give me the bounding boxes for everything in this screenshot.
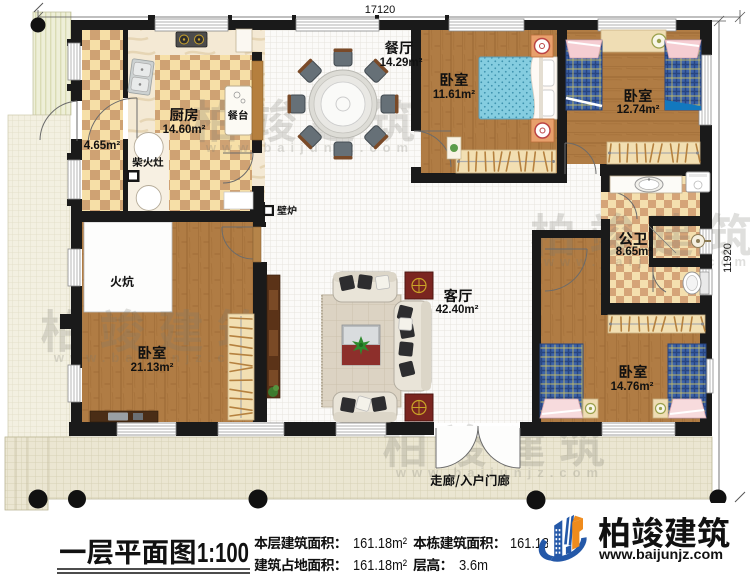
svg-text:11.61m²: 11.61m² xyxy=(433,89,475,101)
svg-text:12.74m²: 12.74m² xyxy=(617,104,660,116)
svg-text:161.18m²: 161.18m² xyxy=(353,557,407,574)
svg-text:21.13m²: 21.13m² xyxy=(131,362,174,374)
svg-text:www.baijunjz.com: www.baijunjz.com xyxy=(598,547,723,562)
svg-text:4.65m²: 4.65m² xyxy=(84,140,121,152)
svg-text:17120: 17120 xyxy=(365,4,396,16)
svg-text:42.40m²: 42.40m² xyxy=(436,304,479,316)
svg-text:14.29m²: 14.29m² xyxy=(380,57,423,69)
svg-text:14.60m²: 14.60m² xyxy=(163,124,206,136)
svg-text:8.65m²: 8.65m² xyxy=(616,246,653,258)
svg-text:3.6m: 3.6m xyxy=(459,557,488,574)
svg-text:161.18m²: 161.18m² xyxy=(353,535,407,552)
svg-text:14.76m²: 14.76m² xyxy=(611,381,654,393)
svg-text:1:100: 1:100 xyxy=(197,537,249,568)
